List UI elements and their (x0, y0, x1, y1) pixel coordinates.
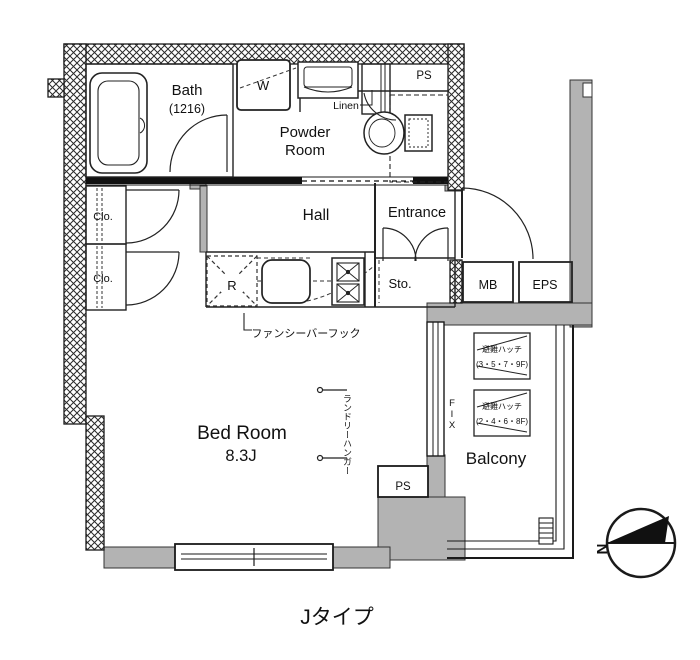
closet-lower-label: Clo. (93, 273, 113, 285)
powder-south-wall (233, 177, 302, 184)
powder-room-label-1: Powder (280, 124, 331, 141)
closet-upper-label: Clo. (93, 211, 113, 223)
evacuation-ladder (539, 518, 553, 544)
washbasin (298, 62, 358, 98)
bedroom-size-label: 8.3J (225, 447, 256, 465)
bedroom-south-wall-right (333, 547, 390, 568)
entrance-label: Entrance (388, 205, 446, 221)
hatch-lower-floors: (2・4・6・8F) (476, 417, 528, 426)
balcony-label: Balcony (466, 449, 527, 468)
storage-label: Sto. (388, 276, 411, 291)
closet-doors (126, 190, 179, 305)
washer-label: W (257, 78, 270, 93)
hanger-hook-top-icon (318, 388, 323, 393)
fancy-bar-hook-label: ファンシーバーフック (251, 327, 360, 340)
compass-north-label: N (593, 544, 610, 555)
meter-box-label: MB (479, 278, 498, 292)
fix-window (427, 322, 444, 456)
sto-mb-pier (450, 260, 462, 303)
bedroom-label: Bed Room (197, 423, 287, 444)
bath-south-wall (86, 177, 233, 184)
eps-label: EPS (532, 278, 557, 292)
room-outlines (86, 64, 572, 310)
hatch-lower-name: 避難ハッチ (482, 401, 522, 411)
linen-label: Linen (333, 100, 359, 112)
refrigerator-label: R (227, 278, 236, 293)
ps-bottom-label: PS (395, 481, 411, 493)
compass-icon: N (593, 509, 675, 577)
storage-doors (383, 228, 448, 261)
interior-wall-band (86, 177, 448, 185)
hatch-upper-name: 避難ハッチ (482, 344, 522, 354)
linen-closet (360, 64, 390, 114)
hanger-hook-bottom-icon (318, 456, 323, 461)
ps-wall-block (378, 497, 465, 560)
laundry-hanger-label: ランドリーハンガー (342, 394, 352, 475)
toilet (364, 93, 448, 182)
east-wall-upper (448, 44, 464, 190)
stove (332, 258, 364, 305)
kitchen-partition-stub (200, 186, 207, 252)
bedroom-south-wall-left (104, 547, 175, 568)
bath-label: Bath (172, 82, 203, 99)
powder-room-label-2: Room (285, 142, 325, 159)
floor-plan-page: 避難ハッチ (3・5・7・9F) 避難ハッチ (2・4・6・8F) ランドリーハ… (0, 0, 700, 660)
evacuation-hatch-upper: 避難ハッチ (3・5・7・9F) (474, 333, 530, 379)
kitchen-sink (262, 260, 310, 303)
balcony-side-wall (427, 455, 445, 499)
gray-walls (104, 80, 592, 568)
corridor-wall (570, 80, 592, 327)
floor-plan-drawing: 避難ハッチ (3・5・7・9F) 避難ハッチ (2・4・6・8F) ランドリーハ… (0, 0, 700, 660)
bedroom-window (175, 544, 333, 570)
ps-top-label: PS (416, 70, 432, 82)
hatch-upper-floors: (3・5・7・9F) (476, 360, 528, 369)
page-title: Jタイプ (300, 606, 374, 629)
evacuation-hatch-lower: 避難ハッチ (2・4・6・8F) (474, 390, 530, 436)
closet-rods (97, 188, 102, 308)
corridor-wall-notch (583, 83, 592, 97)
west-wall (64, 44, 86, 424)
bath-door (170, 115, 227, 172)
entrance-door (462, 188, 533, 259)
west-wall-lower (86, 416, 104, 550)
bath-size-label: (1216) (169, 102, 205, 116)
hall-label: Hall (303, 207, 330, 224)
fix-window-label: FIX (447, 398, 458, 431)
west-wall-pilaster (48, 79, 64, 97)
bathtub (90, 73, 147, 173)
entrance-north-wall (413, 177, 448, 184)
